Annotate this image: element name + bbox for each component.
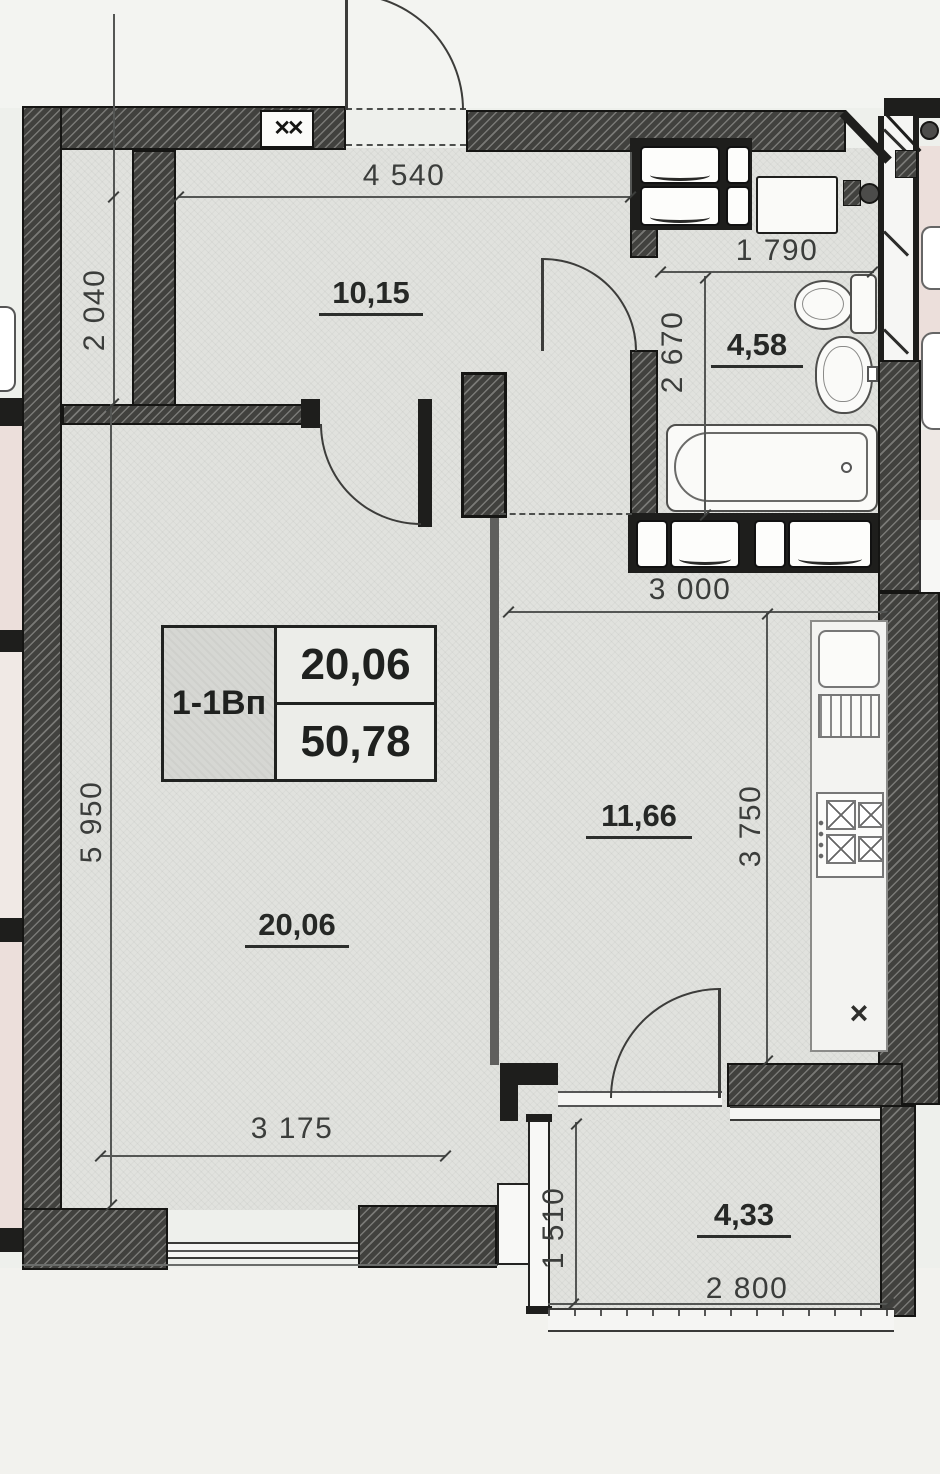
balcony-door-jamb-return xyxy=(500,1063,518,1121)
room-label-balcony: 4,33 xyxy=(697,1198,791,1238)
room-label-kitchen: 11,66 xyxy=(586,799,692,839)
dim-label-5950: 5 950 xyxy=(76,777,108,867)
fridge xyxy=(818,630,880,688)
neighbor-left-wall-stub-2 xyxy=(0,630,22,652)
dim-label-3000: 3 000 xyxy=(620,574,760,606)
dim-label-1510: 1 510 xyxy=(538,1183,570,1273)
stove xyxy=(816,792,884,878)
vent-flue-curve xyxy=(650,169,711,181)
vent-flue-curve xyxy=(798,553,862,565)
unit-areas: 20,06 50,78 xyxy=(277,628,434,779)
outside-top-band xyxy=(0,0,940,108)
vent-flue-cutout xyxy=(640,146,720,184)
dim-label-3750: 3 750 xyxy=(735,781,767,871)
vent-flue-cutout xyxy=(636,520,668,568)
balcony-glazing xyxy=(548,1308,894,1332)
right-wall-upper-block xyxy=(878,360,921,592)
dim-ext-4540 xyxy=(630,152,632,196)
neighbor-drain-circle xyxy=(920,121,939,140)
entry-opening-dash-bottom xyxy=(346,144,466,146)
vent-flue-cutout xyxy=(754,520,786,568)
stove-burner xyxy=(826,834,856,864)
floor-drain xyxy=(859,183,880,204)
unit-label-box: 1-1Вп 20,06 50,78 xyxy=(161,625,437,782)
dim-label-4540: 4 540 xyxy=(334,160,474,192)
room-label-hall: 10,15 xyxy=(319,276,423,316)
hall-left-pilaster xyxy=(132,150,176,406)
kitchen-bottom-wall xyxy=(727,1063,903,1107)
dim-label-3175: 3 175 xyxy=(222,1113,362,1145)
stove-burner xyxy=(858,836,884,862)
kitchen-counter xyxy=(810,620,888,1052)
bathroom-sink xyxy=(815,336,873,414)
toilet-tank xyxy=(850,274,877,334)
vent-flue-cutout xyxy=(726,186,750,226)
kitchen-window xyxy=(730,1106,903,1121)
neighbor-left-tub-end xyxy=(0,306,16,392)
sink-tap xyxy=(867,366,878,382)
living-bottom-wall-right xyxy=(358,1205,497,1268)
dim-line-2670 xyxy=(704,276,706,516)
toilet-bowl-inner xyxy=(802,288,844,320)
counter-end-mark: × xyxy=(842,996,876,1030)
neighbor-tub-head xyxy=(921,332,940,430)
neighbor-left-wall-stub-3 xyxy=(0,918,22,942)
living-window xyxy=(168,1242,359,1259)
vent-flue-cutout xyxy=(670,520,740,568)
unit-area-lower: 50,78 xyxy=(277,705,434,779)
kitchen-boundary-dash xyxy=(500,513,632,515)
vent-flue-cutout xyxy=(788,520,872,568)
window-brace-icon: ✕✕ xyxy=(273,119,300,139)
stove-knobs xyxy=(818,818,824,862)
door-jamb-left xyxy=(301,399,320,428)
balcony-right-wall xyxy=(880,1105,916,1317)
vent-flue-curve xyxy=(679,553,732,565)
dim-line-3175 xyxy=(100,1155,445,1157)
dim-line-3000 xyxy=(508,611,888,613)
stove-burner xyxy=(826,800,856,830)
neighbor-left-floor-pale xyxy=(0,652,22,918)
vent-shaft-bottom xyxy=(628,513,878,573)
neighbor-right-window-sill xyxy=(919,520,940,592)
exterior-wall-left xyxy=(22,106,62,1254)
living-bottom-wall-left xyxy=(22,1208,168,1270)
dim-line-2040 xyxy=(113,196,115,404)
central-column xyxy=(461,372,507,518)
fridge-vent-grill xyxy=(818,694,880,738)
dim-label-2040: 2 040 xyxy=(79,265,111,355)
vent-flue-curve xyxy=(650,211,711,223)
bathtub xyxy=(666,424,878,512)
vent-flue-cutout xyxy=(640,186,720,226)
dim-line-1510 xyxy=(575,1122,577,1304)
dim-ext-2040 xyxy=(113,14,115,196)
neighbor-right-floor-pale xyxy=(921,430,940,520)
balcony-glazing-ticks xyxy=(548,1310,894,1316)
living-window-mid-line xyxy=(168,1250,359,1252)
vent-flue-cutout xyxy=(726,146,750,184)
bathroom-left-wall-lower xyxy=(630,350,658,518)
floor-plan: ✕✕ xyxy=(0,0,940,1474)
dim-label-1790: 1 790 xyxy=(707,235,847,267)
facade-face-line xyxy=(22,1264,498,1266)
top-wall-window-box: ✕✕ xyxy=(260,110,314,148)
bathtub-drain xyxy=(841,462,852,473)
washing-machine xyxy=(756,176,838,234)
dim-line-5950 xyxy=(110,404,112,1206)
neighbor-left-floor-pink-1 xyxy=(0,426,22,630)
stove-burner xyxy=(858,802,884,828)
toilet-bowl xyxy=(794,280,854,330)
unit-area-upper: 20,06 xyxy=(277,628,434,705)
dim-label-2800: 2 800 xyxy=(677,1273,817,1305)
neighbor-left-wall-stub-4 xyxy=(0,1228,22,1252)
hall-living-wall xyxy=(62,404,305,425)
dim-line-1790 xyxy=(660,271,874,273)
bathroom-sink-inner xyxy=(823,346,863,402)
dim-label-2670: 2 670 xyxy=(657,307,689,397)
neighbor-sink xyxy=(921,226,940,290)
vent-shaft-top xyxy=(630,138,752,230)
neighbor-top-wall-band xyxy=(884,98,940,118)
room-label-living: 20,06 xyxy=(245,908,349,948)
neighbor-hatch-corner xyxy=(895,150,917,178)
room-label-bathroom: 4,58 xyxy=(711,328,803,368)
neighbor-left-floor-pink-2 xyxy=(0,942,22,1228)
corner-window-strip xyxy=(497,1183,530,1265)
neighbor-left-wall-stub-1 xyxy=(0,398,22,426)
unit-code: 1-1Вп xyxy=(164,628,277,779)
dim-line-4540 xyxy=(178,196,630,198)
living-kitchen-partition xyxy=(490,518,499,1065)
